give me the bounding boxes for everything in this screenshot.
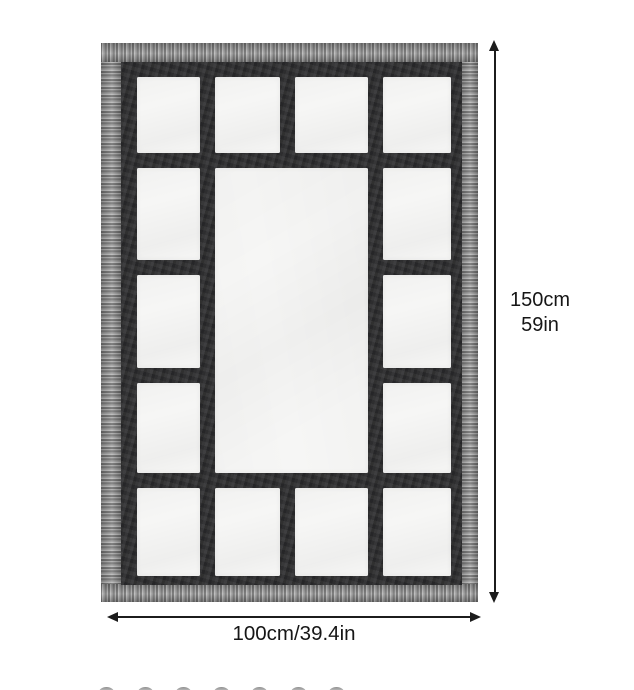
photo-panel xyxy=(137,488,200,576)
photo-panel xyxy=(137,383,200,472)
height-cm-text: 150cm xyxy=(497,288,583,313)
photo-panel xyxy=(383,77,451,153)
photo-panel xyxy=(137,275,200,368)
fringe-edge-bottom xyxy=(101,584,478,602)
photo-panel xyxy=(383,275,451,368)
arrow-left-icon xyxy=(107,612,118,622)
height-dimension-line xyxy=(494,49,496,595)
photo-panel xyxy=(383,168,451,259)
height-in-text: 59in xyxy=(497,313,583,338)
center-photo-panel xyxy=(215,168,369,472)
arrow-down-icon xyxy=(489,592,499,603)
fringe-edge-right xyxy=(461,45,478,600)
photo-panel xyxy=(215,77,281,153)
photo-panel xyxy=(295,77,368,153)
photo-panel xyxy=(137,77,200,153)
photo-panel xyxy=(137,168,200,259)
photo-panel xyxy=(215,488,281,576)
arrow-up-icon xyxy=(489,40,499,51)
photo-panel xyxy=(383,383,451,472)
height-dimension-label: 150cm 59in xyxy=(497,288,583,338)
fringe-edge-left xyxy=(101,45,121,600)
blanket-frame-grid xyxy=(121,62,462,585)
arrow-right-icon xyxy=(470,612,481,622)
width-dimension-line xyxy=(116,616,472,618)
photo-panel xyxy=(383,488,451,576)
product-dimension-diagram: 150cm 59in 100cm/39.4in xyxy=(0,0,634,690)
photo-panel xyxy=(295,488,368,576)
width-dimension-label: 100cm/39.4in xyxy=(164,622,424,646)
fringe-edge-top xyxy=(101,43,478,62)
photo-blanket xyxy=(101,43,478,602)
